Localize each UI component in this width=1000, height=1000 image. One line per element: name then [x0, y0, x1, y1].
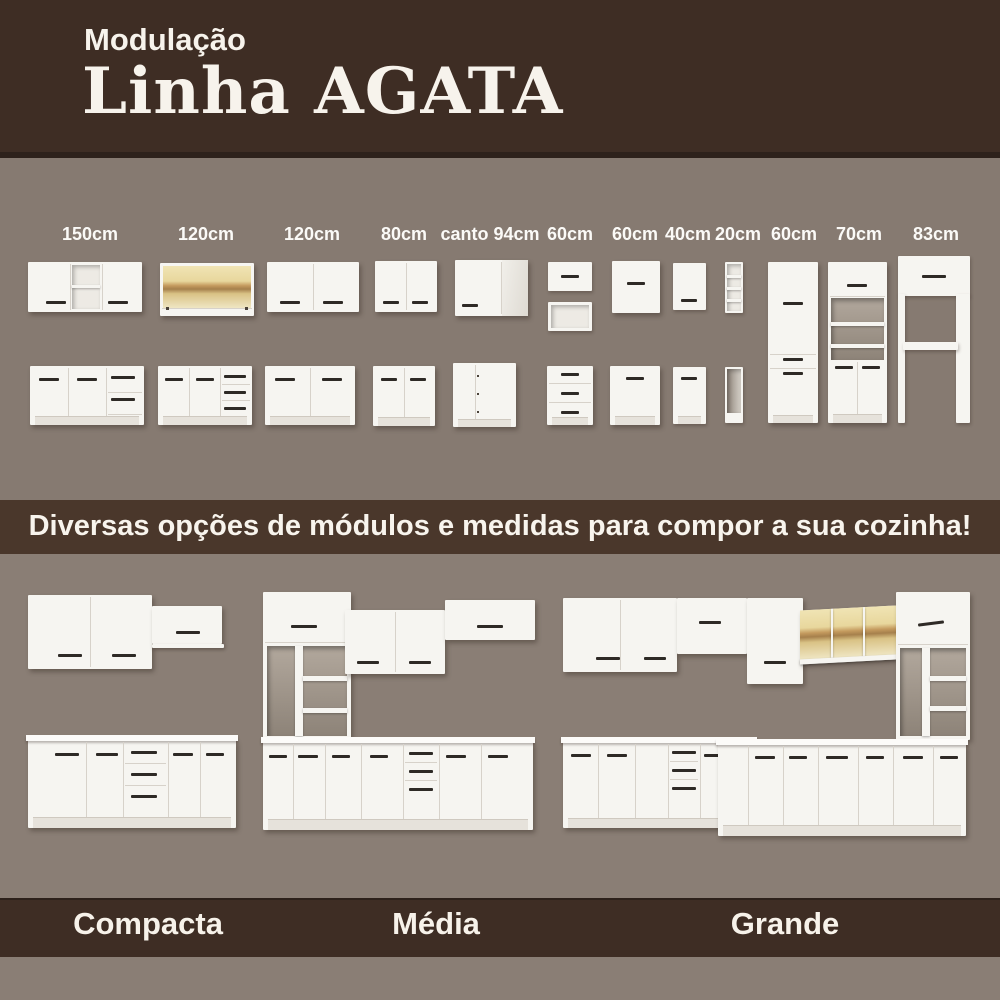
door-handle: [644, 657, 666, 660]
kitchen-label-compacta: Compacta: [58, 906, 238, 946]
door-gap: [700, 744, 701, 826]
door-gap: [70, 264, 71, 310]
door-gap: [313, 264, 314, 310]
door-gap: [189, 368, 190, 423]
plinth: [833, 414, 882, 423]
grande-wall-bridge-cabinet: [677, 598, 747, 654]
shelf: [930, 706, 966, 711]
door-handle: [627, 282, 645, 285]
drawer-handle: [672, 769, 696, 772]
drawer-handle: [131, 795, 157, 798]
door-gap: [635, 744, 636, 826]
drawer-gap: [222, 400, 250, 401]
door-gap: [265, 642, 349, 643]
drawer-handle: [224, 375, 246, 378]
door-handle: [357, 661, 379, 664]
door-gap: [86, 742, 87, 826]
wall-cabinet-60cm-door: [548, 262, 592, 291]
wall-niche-60cm: [548, 302, 592, 331]
media-base-counter: [263, 742, 533, 830]
drawer-handle: [131, 773, 157, 776]
door-handle: [173, 753, 193, 756]
door-gap: [620, 600, 621, 670]
fridge-side-panel: [956, 294, 970, 423]
drawer-gap: [670, 779, 698, 780]
shelf: [831, 344, 884, 348]
drawer-gap: [670, 761, 698, 762]
wood-interior: [163, 266, 251, 308]
door-handle: [108, 301, 128, 304]
door-gap: [361, 744, 362, 828]
drawer-gap: [405, 762, 437, 763]
size-label-150cm: 150cm: [35, 224, 145, 246]
banner-text: Diversas opções de módulos e medidas par…: [0, 510, 1000, 543]
door-handle: [681, 377, 697, 380]
grande-wall-cabinet-left: [563, 598, 677, 672]
kitchen-label-grande: Grande: [695, 906, 875, 946]
door-gap: [123, 742, 124, 826]
door-handle: [46, 301, 66, 304]
drawer-gap: [549, 383, 591, 384]
shelf: [727, 275, 741, 278]
shelf: [303, 676, 347, 681]
plinth: [458, 419, 511, 427]
wall-shelf-column-20cm: [725, 262, 743, 313]
open-niche: [551, 305, 589, 328]
drawer-gap: [125, 785, 166, 786]
glass-door-frame: [863, 607, 865, 656]
hinge-dot: [477, 411, 479, 413]
door-gap: [406, 263, 407, 310]
door-gap: [818, 746, 819, 834]
door-handle: [77, 378, 97, 381]
door-handle: [681, 299, 697, 302]
door-handle: [862, 366, 880, 369]
shelf: [831, 322, 884, 326]
door-handle: [370, 755, 388, 758]
fitting-dot: [166, 307, 169, 310]
drawer-handle: [409, 788, 433, 791]
plinth: [678, 416, 701, 424]
base-cabinet-80cm: [373, 366, 435, 426]
oven-niche: [831, 298, 884, 360]
grande-wall-corner-cabinet: [747, 598, 803, 684]
plinth: [35, 416, 139, 425]
grande-tall-tower: [896, 592, 970, 740]
tall-cabinet-83cm-fridge-frame: [898, 256, 970, 423]
shelf: [727, 287, 741, 290]
plinth: [615, 416, 655, 425]
kitchen-label-media: Média: [346, 906, 526, 946]
door-gap: [168, 742, 169, 826]
drawer-handle: [224, 391, 246, 394]
wall-cabinet-corner-94cm: [455, 260, 528, 316]
drawer-handle: [672, 751, 696, 754]
compacta-base-counter: [28, 740, 236, 828]
plinth: [378, 417, 430, 426]
door-gap: [220, 368, 221, 423]
door-handle: [409, 661, 431, 664]
base-cabinet-40cm: [673, 367, 706, 424]
base-shelf-column-20cm: [725, 367, 743, 423]
door-handle: [298, 755, 318, 758]
wall-cabinet-80cm: [375, 261, 437, 312]
compacta-wall-cabinet: [28, 595, 152, 669]
drawer-gap: [108, 414, 142, 415]
drawer-handle: [409, 770, 433, 773]
shelf: [72, 285, 100, 288]
wall-cabinet-40cm: [673, 263, 706, 310]
shelf: [727, 299, 741, 302]
base-cabinet-120cm-drawers: [158, 366, 252, 425]
door-handle: [332, 755, 350, 758]
door-handle: [488, 755, 508, 758]
door-handle: [165, 378, 183, 381]
door-gap: [858, 746, 859, 834]
door-gap: [439, 744, 440, 828]
door-handle: [446, 755, 466, 758]
drawer-handle: [561, 411, 579, 414]
plinth: [773, 415, 813, 423]
drawer-gap: [125, 763, 166, 764]
door-gap: [501, 262, 502, 314]
page-title: Linha AGATA: [82, 54, 563, 129]
plinth: [33, 817, 231, 828]
door-handle: [903, 756, 923, 759]
door-gap: [102, 264, 103, 310]
shelf-edge: [162, 308, 252, 309]
drawer-handle: [561, 373, 579, 376]
door-gap: [404, 368, 405, 424]
glass-door-frame: [831, 609, 833, 658]
drawer-handle: [131, 751, 157, 754]
door-gap: [898, 644, 968, 645]
open-niche: [727, 369, 741, 413]
door-gap: [106, 368, 107, 423]
door-gap: [770, 354, 816, 355]
door-handle: [755, 756, 775, 759]
door-gap: [668, 744, 669, 826]
door-handle: [412, 301, 428, 304]
corner-side-panel: [502, 260, 528, 316]
hinge-dot: [477, 375, 479, 377]
hinge-dot: [477, 393, 479, 395]
door-handle: [381, 378, 397, 381]
shelf: [930, 676, 966, 681]
base-cabinet-120cm: [265, 366, 355, 425]
plinth: [163, 416, 247, 425]
wall-cabinet-120cm-wood: [160, 263, 254, 316]
plinth: [552, 417, 588, 425]
fridge-top-cabinet: [898, 256, 970, 296]
catalog-page: Modulação Linha AGATA 150cm 120cm 120cm …: [0, 0, 1000, 1000]
base-cabinet-60cm-drawers: [547, 366, 593, 425]
door-gap: [857, 362, 858, 414]
fitting-dot: [245, 307, 248, 310]
media-wall-cabinet: [345, 610, 445, 674]
tall-cabinet-60cm: [768, 262, 818, 423]
door-handle: [847, 284, 867, 287]
door-gap: [598, 744, 599, 826]
tall-cabinet-70cm-oven: [828, 262, 887, 423]
door-gap: [325, 744, 326, 828]
door-gap: [200, 742, 201, 826]
wall-cabinet-120cm: [267, 262, 359, 312]
base-cabinet-150cm: [30, 366, 144, 425]
door-gap: [783, 746, 784, 834]
door-handle: [323, 301, 343, 304]
door-gap: [90, 597, 91, 667]
door-handle: [269, 755, 287, 758]
door-handle: [699, 621, 721, 624]
door-handle: [783, 302, 803, 305]
door-handle: [922, 275, 946, 278]
drawer-handle: [561, 392, 579, 395]
door-gap: [748, 746, 749, 834]
fridge-divider: [903, 342, 958, 350]
grande-wood-glass-cabinet: [800, 605, 896, 664]
door-handle: [383, 301, 399, 304]
door-gap: [933, 746, 934, 834]
door-handle: [607, 754, 627, 757]
door-handle: [96, 753, 118, 756]
media-wall-step-cabinet: [445, 600, 535, 640]
drawer-handle: [111, 376, 135, 379]
countertop: [261, 737, 535, 743]
door-gap: [293, 744, 294, 828]
drawer-handle: [224, 407, 246, 410]
door-handle: [571, 754, 591, 757]
door-gap: [395, 612, 396, 672]
door-handle: [410, 378, 426, 381]
tower-open-niche: [267, 646, 347, 736]
shelf: [303, 708, 347, 713]
door-gap: [403, 744, 404, 828]
compacta-wall-step-cabinet: [152, 606, 222, 644]
drawer-gap: [549, 402, 591, 403]
door-gap: [68, 368, 69, 423]
door-handle: [940, 756, 958, 759]
drawer-handle: [409, 752, 433, 755]
countertop: [716, 739, 968, 745]
tower-open-niche: [900, 648, 966, 736]
door-handle: [596, 657, 620, 660]
door-handle: [835, 366, 853, 369]
door-handle: [112, 654, 136, 657]
door-handle: [280, 301, 300, 304]
divider-panel: [295, 646, 303, 736]
countertop: [26, 735, 238, 741]
drawer-handle: [783, 358, 803, 361]
drawer-gap: [770, 368, 816, 369]
door-handle: [39, 378, 59, 381]
door-handle: [196, 378, 214, 381]
door-handle: [477, 625, 503, 628]
door-gap: [475, 365, 476, 425]
door-gap: [310, 368, 311, 423]
base-cabinet-corner-94cm: [453, 363, 516, 427]
base-cabinet-60cm: [610, 366, 660, 425]
door-handle: [764, 661, 786, 664]
header: Modulação Linha AGATA: [0, 0, 1000, 152]
plinth: [270, 416, 350, 425]
drawer-handle: [111, 398, 135, 401]
drawer-gap: [405, 780, 437, 781]
plinth: [723, 825, 961, 836]
wall-cabinet-60cm: [612, 261, 660, 313]
door-gap: [893, 746, 894, 834]
drawer-handle: [672, 787, 696, 790]
door-handle: [826, 756, 848, 759]
drawer-gap: [222, 384, 250, 385]
open-shelf: [72, 265, 100, 309]
door-gap: [830, 296, 885, 297]
door-handle: [626, 377, 644, 380]
door-handle: [291, 625, 317, 628]
door-handle: [462, 304, 478, 307]
door-handle: [176, 631, 200, 634]
fridge-side-panel: [898, 294, 905, 423]
divider-panel: [922, 648, 930, 736]
wall-cabinet-150cm: [28, 262, 142, 312]
header-kicker: Modulação: [84, 22, 246, 58]
door-handle: [561, 275, 579, 278]
door-handle: [206, 753, 224, 756]
door-handle: [55, 753, 79, 756]
door-handle: [58, 654, 82, 657]
door-gap: [481, 744, 482, 828]
door-handle: [783, 372, 803, 375]
compacta-step-shelf: [152, 644, 224, 648]
door-handle: [275, 378, 295, 381]
door-handle: [322, 378, 342, 381]
drawer-gap: [108, 392, 142, 393]
size-label-120cm-a: 120cm: [151, 224, 261, 246]
size-label-83cm: 83cm: [881, 224, 991, 246]
media-tall-tower: [263, 592, 351, 740]
door-handle: [789, 756, 807, 759]
door-handle: [866, 756, 884, 759]
wood-interior: [800, 605, 896, 659]
plinth: [268, 819, 528, 830]
door-handle: [918, 620, 944, 626]
grande-base-counter-right: [718, 744, 966, 836]
